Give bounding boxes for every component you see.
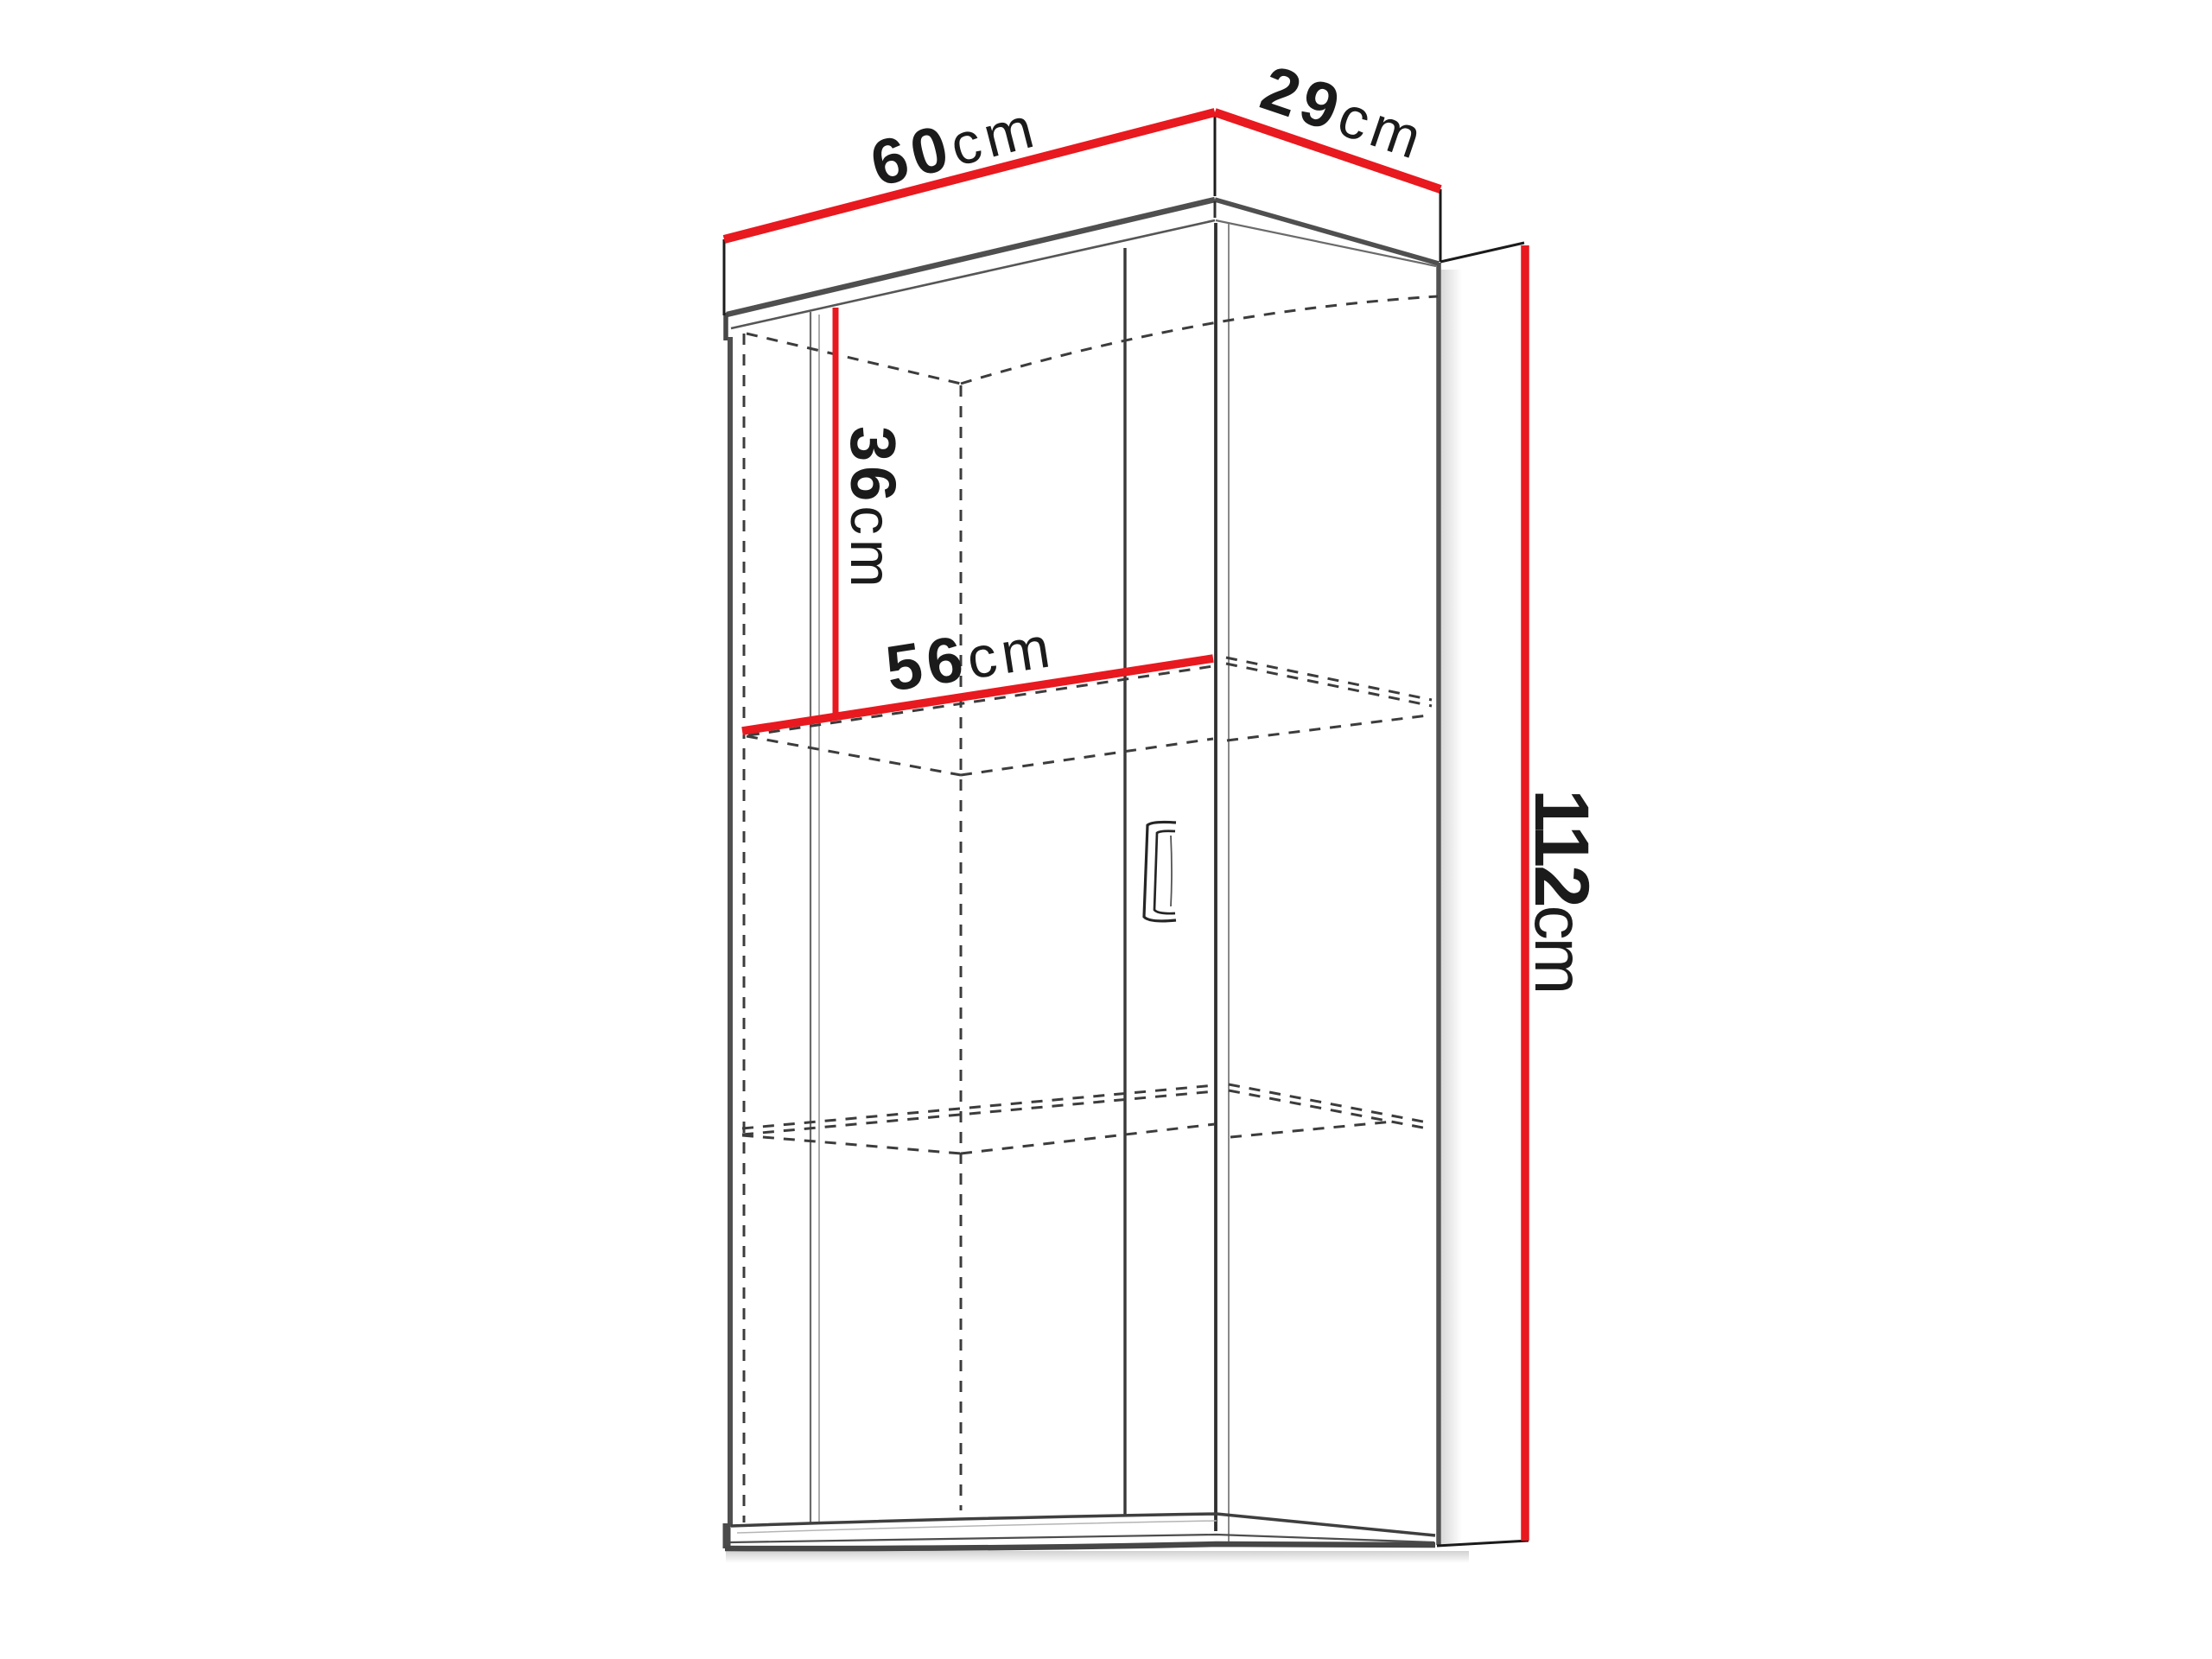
- svg-text:112cm: 112cm: [1519, 789, 1605, 992]
- svg-text:36cm: 36cm: [837, 426, 909, 592]
